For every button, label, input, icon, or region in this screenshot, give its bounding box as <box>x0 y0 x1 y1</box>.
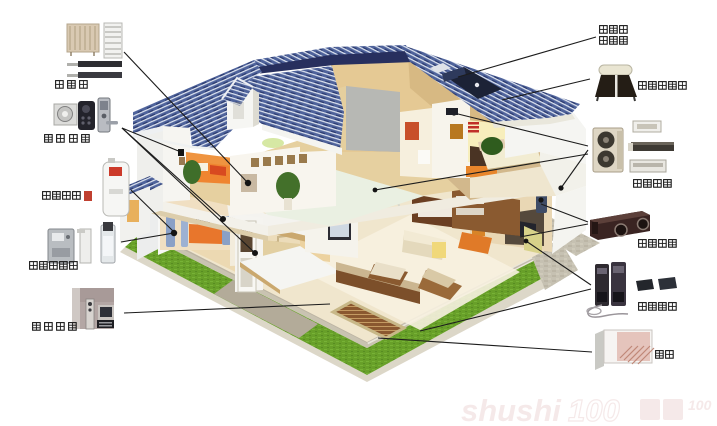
svg-text:100: 100 <box>688 397 712 413</box>
svg-text:100: 100 <box>568 393 620 426</box>
svg-text:shushi: shushi <box>461 393 562 426</box>
